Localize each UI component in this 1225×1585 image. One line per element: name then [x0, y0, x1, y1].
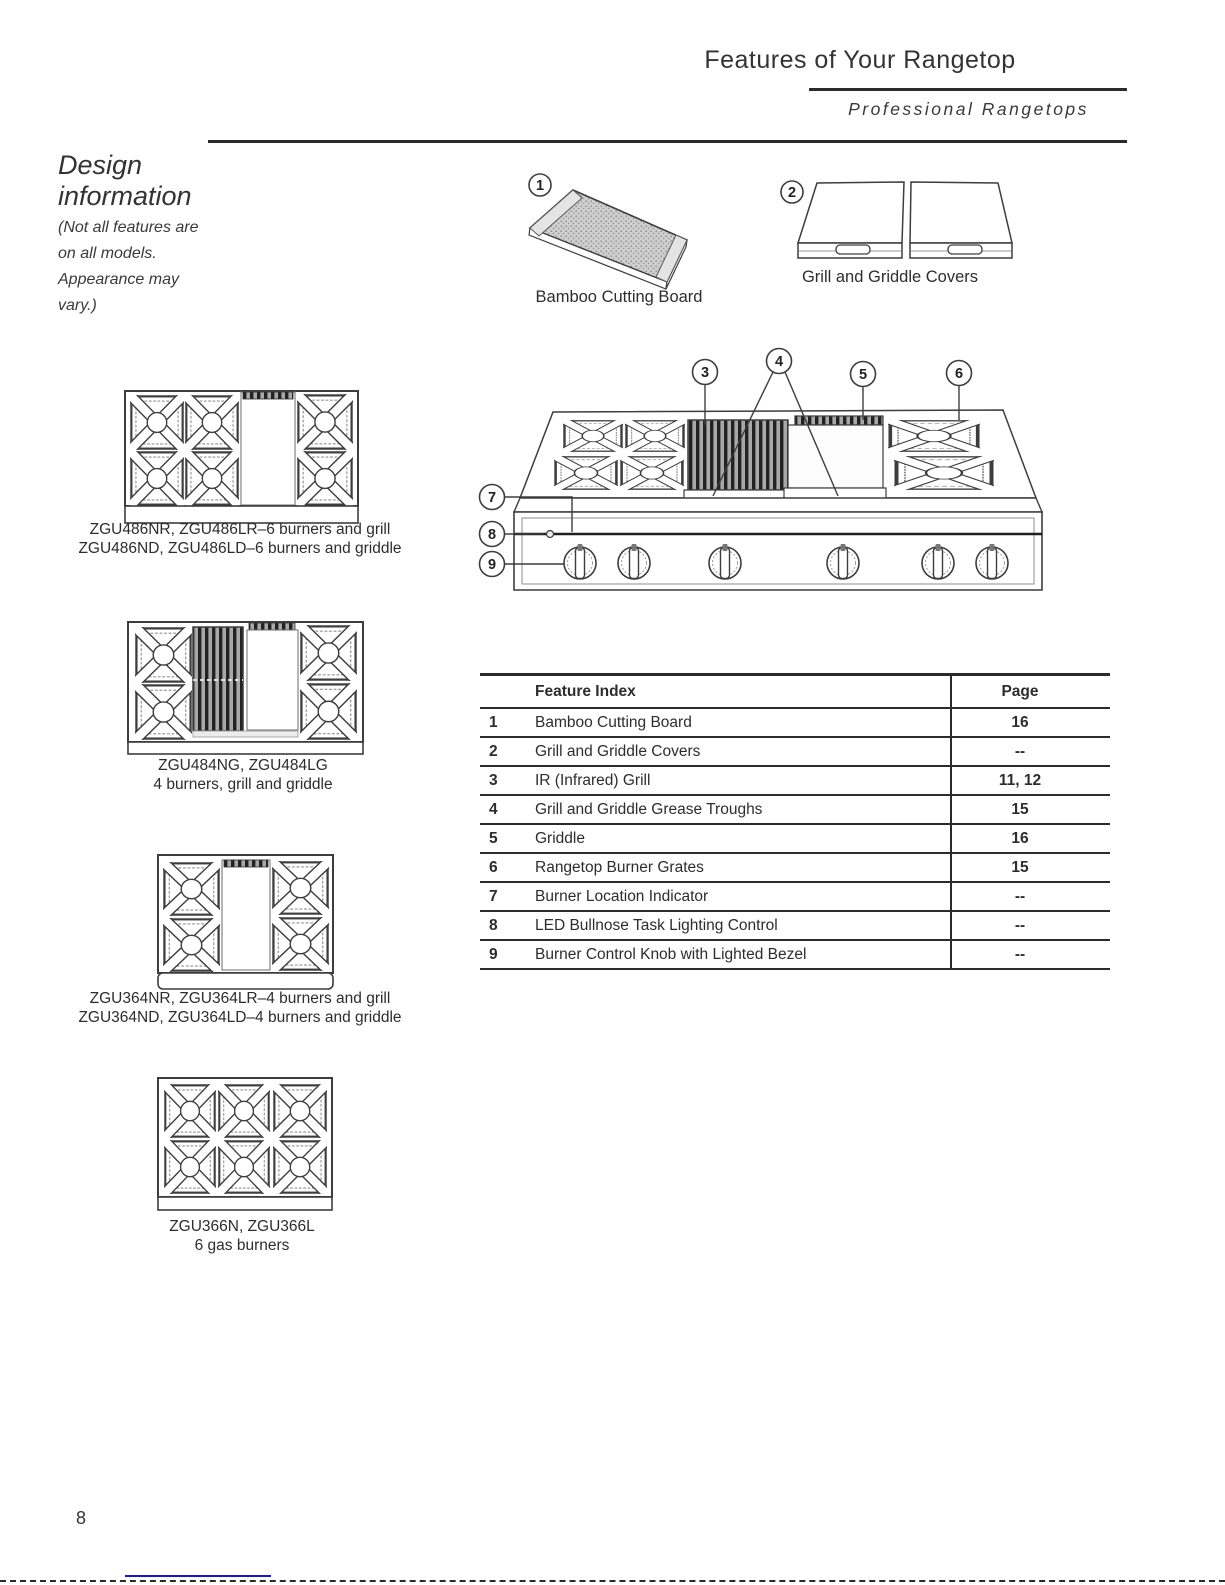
row-num: 1: [480, 708, 528, 737]
caption-line: ZGU486ND, ZGU486LD–6 burners and griddle: [55, 540, 425, 559]
svg-text:3: 3: [701, 365, 709, 381]
callout-3: 3: [693, 360, 718, 385]
manual-page: Features of Your Rangetop Professional R…: [0, 0, 1225, 1585]
page-ref: 15: [951, 853, 1110, 882]
svg-text:1: 1: [536, 178, 544, 194]
svg-text:6: 6: [955, 366, 963, 382]
feature-index-table: Feature Index Page 1 Bamboo Cutting Boar…: [480, 673, 1110, 970]
caption-line: ZGU364NR, ZGU364LR–4 burners and grill: [60, 990, 420, 1009]
callout-6: 6: [947, 361, 972, 386]
row-num: 9: [480, 940, 528, 969]
table-row: 6 Rangetop Burner Grates 15: [480, 853, 1110, 882]
zgu364-caption: ZGU364NR, ZGU364LR–4 burners and grill Z…: [60, 990, 420, 1027]
page-ref: 16: [951, 708, 1110, 737]
page-ref: 16: [951, 824, 1110, 853]
title-rule: [809, 88, 1127, 91]
caption-line: ZGU366N, ZGU366L: [60, 1218, 424, 1237]
figure-zgu486: [110, 378, 370, 528]
covers-caption: Grill and Griddle Covers: [765, 268, 1015, 287]
led-task-light: [547, 531, 554, 538]
caption-line: ZGU364ND, ZGU364LD–4 burners and griddle: [60, 1009, 420, 1028]
page-title: Features of Your Rangetop: [640, 46, 1080, 75]
footer-blue-line: [125, 1575, 271, 1577]
caption-line: ZGU484NG, ZGU484LG: [60, 757, 426, 776]
svg-text:7: 7: [488, 490, 496, 506]
page-subtitle: Professional Rangetops: [810, 99, 1127, 120]
page-ref: --: [951, 940, 1110, 969]
row-num: 6: [480, 853, 528, 882]
table-row: 5 Griddle 16: [480, 824, 1110, 853]
feature-name: Burner Control Knob with Lighted Bezel: [528, 940, 951, 969]
caption-line: 6 gas burners: [60, 1237, 424, 1256]
feature-name: LED Bullnose Task Lighting Control: [528, 911, 951, 940]
zgu366-caption: ZGU366N, ZGU366L 6 gas burners: [60, 1218, 424, 1255]
table-row: 7 Burner Location Indicator --: [480, 882, 1110, 911]
page-bottom-edge: [0, 1580, 1225, 1582]
page-ref: 11, 12: [951, 766, 1110, 795]
svg-text:9: 9: [488, 557, 496, 573]
table-row: 3 IR (Infrared) Grill 11, 12: [480, 766, 1110, 795]
feature-name: Bamboo Cutting Board: [528, 708, 951, 737]
page-ref: --: [951, 882, 1110, 911]
svg-text:5: 5: [859, 367, 867, 383]
callout-4: 4: [767, 349, 792, 374]
main-rangetop-diagram: 3 4 5 6 7 8 9: [458, 350, 1053, 600]
svg-text:4: 4: [775, 354, 783, 370]
row-num: 7: [480, 882, 528, 911]
cutting-board-caption: Bamboo Cutting Board: [505, 288, 733, 307]
caption-line: 4 burners, grill and griddle: [60, 776, 426, 795]
feature-name: Burner Location Indicator: [528, 882, 951, 911]
table-row: 9 Burner Control Knob with Lighted Bezel…: [480, 940, 1110, 969]
cutting-board-figure: 1: [500, 165, 710, 295]
row-num: 2: [480, 737, 528, 766]
callout-8: 8: [480, 522, 505, 547]
page-ref: --: [951, 911, 1110, 940]
row-num: 3: [480, 766, 528, 795]
page-number: 8: [76, 1508, 86, 1529]
design-info-heading: Design information: [58, 150, 233, 212]
page-ref: 15: [951, 795, 1110, 824]
table-row: 4 Grill and Griddle Grease Troughs 15: [480, 795, 1110, 824]
num-header: [480, 675, 528, 709]
table-row: 1 Bamboo Cutting Board 16: [480, 708, 1110, 737]
covers-figure: 2: [760, 165, 1020, 270]
callout-1: 1: [529, 174, 551, 196]
svg-text:8: 8: [488, 527, 496, 543]
caption-line: ZGU486NR, ZGU486LR–6 burners and grill: [55, 521, 425, 540]
page-ref: --: [951, 737, 1110, 766]
design-info-note: (Not all features are on all models. App…: [58, 215, 220, 319]
row-num: 4: [480, 795, 528, 824]
feature-name: Grill and Griddle Grease Troughs: [528, 795, 951, 824]
feature-name: Grill and Griddle Covers: [528, 737, 951, 766]
zgu486-caption: ZGU486NR, ZGU486LR–6 burners and grill Z…: [55, 521, 425, 558]
row-num: 5: [480, 824, 528, 853]
header-rule: [208, 140, 1127, 143]
feature-name: Griddle: [528, 824, 951, 853]
feature-name: Rangetop Burner Grates: [528, 853, 951, 882]
zgu484-caption: ZGU484NG, ZGU484LG 4 burners, grill and …: [60, 757, 426, 794]
callout-2: 2: [781, 181, 803, 203]
callout-5: 5: [851, 362, 876, 387]
page-header: Page: [951, 675, 1110, 709]
row-num: 8: [480, 911, 528, 940]
table-row: 2 Grill and Griddle Covers --: [480, 737, 1110, 766]
feature-index-header: Feature Index: [528, 675, 951, 709]
table-row: 8 LED Bullnose Task Lighting Control --: [480, 911, 1110, 940]
callout-9: 9: [480, 552, 505, 577]
feature-name: IR (Infrared) Grill: [528, 766, 951, 795]
callout-7: 7: [480, 485, 505, 510]
svg-text:2: 2: [788, 185, 796, 201]
table-header-row: Feature Index Page: [480, 675, 1110, 709]
